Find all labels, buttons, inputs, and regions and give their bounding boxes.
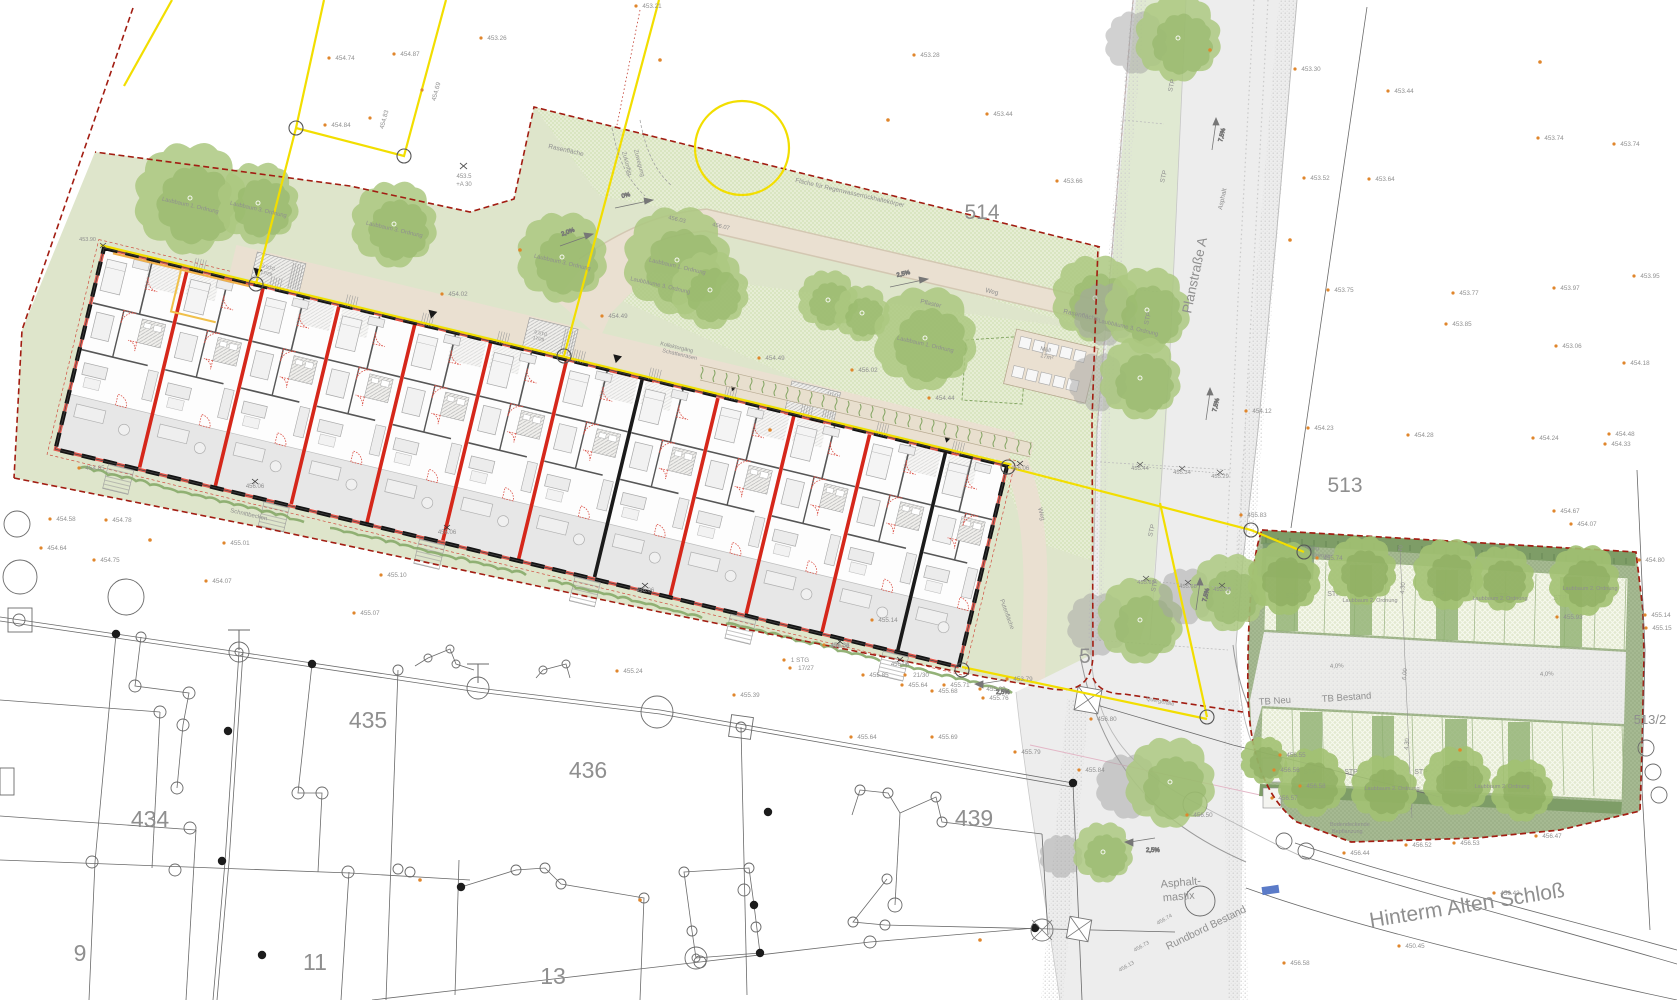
svg-text:453.85: 453.85 bbox=[1452, 321, 1472, 328]
svg-text:454.64: 454.64 bbox=[47, 545, 67, 552]
svg-text:454.49: 454.49 bbox=[608, 313, 628, 320]
svg-text:9: 9 bbox=[74, 940, 87, 966]
svg-text:456.06: 456.06 bbox=[438, 530, 457, 536]
svg-text:Laubbaum 2. Ordnung: Laubbaum 2. Ordnung bbox=[1364, 786, 1419, 792]
svg-text:456.02: 456.02 bbox=[858, 367, 878, 374]
svg-text:454.67: 454.67 bbox=[1560, 508, 1580, 515]
svg-text:455.15: 455.15 bbox=[1652, 625, 1672, 632]
svg-text:Bodendeckende: Bodendeckende bbox=[1330, 822, 1370, 828]
svg-text:453.06: 453.06 bbox=[1562, 343, 1582, 350]
svg-text:455.01: 455.01 bbox=[230, 540, 250, 547]
svg-text:455.14: 455.14 bbox=[1651, 612, 1671, 619]
svg-text:5: 5 bbox=[1079, 645, 1091, 668]
svg-text:453.64: 453.64 bbox=[1375, 176, 1395, 183]
svg-text:456.57: 456.57 bbox=[1278, 795, 1298, 802]
svg-text:456.44: 456.44 bbox=[1350, 850, 1370, 857]
svg-text:456.53: 456.53 bbox=[1460, 840, 1480, 847]
svg-text:Laubbaum 2. Ordnung: Laubbaum 2. Ordnung bbox=[1562, 586, 1617, 592]
svg-text:456.55: 456.55 bbox=[1286, 752, 1306, 759]
svg-text:456.58: 456.58 bbox=[1290, 960, 1310, 967]
svg-text:454.75: 454.75 bbox=[100, 557, 120, 564]
svg-text:453.21: 453.21 bbox=[642, 3, 662, 10]
svg-text:456.80: 456.80 bbox=[1097, 716, 1117, 723]
svg-text:454.23: 454.23 bbox=[1314, 425, 1334, 432]
svg-text:11: 11 bbox=[303, 949, 327, 975]
svg-text:4,30: 4,30 bbox=[1400, 581, 1407, 594]
svg-text:453.68: 453.68 bbox=[1213, 587, 1231, 593]
svg-text:453.30: 453.30 bbox=[1301, 66, 1321, 73]
svg-text:435: 435 bbox=[349, 707, 387, 733]
svg-text:4,0%: 4,0% bbox=[1330, 663, 1345, 670]
svg-text:453.52: 453.52 bbox=[1310, 175, 1330, 182]
svg-text:455.29: 455.29 bbox=[1211, 474, 1229, 480]
svg-text:454.33: 454.33 bbox=[1611, 441, 1631, 448]
svg-text:455.64: 455.64 bbox=[908, 682, 928, 689]
svg-text:455.93: 455.93 bbox=[1563, 614, 1583, 621]
svg-text:513: 513 bbox=[1327, 474, 1362, 497]
svg-text:455.07: 455.07 bbox=[360, 610, 380, 617]
svg-text:13: 13 bbox=[540, 963, 566, 989]
svg-text:453.95: 453.95 bbox=[1640, 273, 1660, 280]
svg-text:455.85: 455.85 bbox=[869, 672, 889, 679]
svg-text:21/30: 21/30 bbox=[913, 672, 929, 679]
svg-text:455.79: 455.79 bbox=[1021, 749, 1041, 756]
svg-text:454.28: 454.28 bbox=[1414, 432, 1434, 439]
svg-text:+A 30: +A 30 bbox=[456, 182, 472, 188]
svg-text:456.06: 456.06 bbox=[636, 588, 655, 594]
svg-text:454.07: 454.07 bbox=[1577, 521, 1597, 528]
svg-text:456.06: 456.06 bbox=[1011, 466, 1030, 472]
svg-text:434: 434 bbox=[131, 806, 170, 832]
svg-text:455.74: 455.74 bbox=[1323, 555, 1343, 562]
svg-text:17/27: 17/27 bbox=[798, 665, 814, 672]
svg-text:455.10: 455.10 bbox=[387, 572, 407, 579]
svg-text:70: 70 bbox=[1398, 544, 1405, 552]
svg-text:453.77: 453.77 bbox=[1459, 290, 1479, 297]
svg-text:513/2: 513/2 bbox=[1634, 712, 1667, 727]
svg-text:453.79: 453.79 bbox=[1013, 676, 1033, 683]
svg-text:454.48: 454.48 bbox=[1615, 431, 1635, 438]
svg-text:453.90: 453.90 bbox=[79, 237, 96, 243]
svg-text:455.68: 455.68 bbox=[938, 688, 958, 695]
svg-text:454.02: 454.02 bbox=[448, 291, 468, 298]
svg-text:456.52: 456.52 bbox=[1412, 842, 1432, 849]
svg-text:453.74: 453.74 bbox=[1620, 141, 1640, 148]
svg-text:455.64: 455.64 bbox=[857, 734, 877, 741]
svg-text:454.07: 454.07 bbox=[212, 578, 232, 585]
svg-text:450.45: 450.45 bbox=[1405, 943, 1425, 950]
svg-text:453.66: 453.66 bbox=[1063, 178, 1083, 185]
svg-text:455.69: 455.69 bbox=[938, 734, 958, 741]
svg-text:2,5%: 2,5% bbox=[996, 690, 1010, 696]
svg-text:454.49: 454.49 bbox=[765, 355, 785, 362]
svg-text:456.06: 456.06 bbox=[831, 644, 850, 650]
svg-text:456.47: 456.47 bbox=[1542, 833, 1562, 840]
svg-text:455.68: 455.68 bbox=[1179, 584, 1197, 590]
svg-text:454.12: 454.12 bbox=[1252, 408, 1272, 415]
svg-text:455.39: 455.39 bbox=[740, 692, 760, 699]
svg-text:454.85: 454.85 bbox=[85, 465, 105, 472]
svg-text:454.80: 454.80 bbox=[1645, 557, 1665, 564]
svg-text:455.83: 455.83 bbox=[1247, 512, 1267, 519]
svg-text:455.76: 455.76 bbox=[989, 695, 1009, 702]
svg-text:4,0%: 4,0% bbox=[1540, 671, 1555, 678]
svg-text:453.44: 453.44 bbox=[1394, 88, 1414, 95]
svg-text:456.58: 456.58 bbox=[1306, 783, 1326, 790]
svg-text:453.26: 453.26 bbox=[487, 35, 507, 42]
svg-text:454.87: 454.87 bbox=[400, 51, 420, 58]
svg-text:453.44: 453.44 bbox=[993, 111, 1013, 118]
svg-text:4,30: 4,30 bbox=[1404, 737, 1411, 750]
svg-text:454.44: 454.44 bbox=[935, 395, 955, 402]
svg-text:453.5: 453.5 bbox=[456, 174, 472, 180]
svg-text:Bepflanzung: Bepflanzung bbox=[1332, 829, 1363, 835]
svg-text:455.24: 455.24 bbox=[623, 668, 643, 675]
svg-text:453.97: 453.97 bbox=[1560, 285, 1580, 292]
svg-text:456.50: 456.50 bbox=[1193, 812, 1213, 819]
svg-text:1 STG: 1 STG bbox=[791, 657, 809, 664]
svg-text:454.18: 454.18 bbox=[1630, 360, 1650, 367]
svg-text:Laubbaum 2. Ordnung: Laubbaum 2. Ordnung bbox=[1342, 598, 1397, 604]
svg-text:456.06: 456.06 bbox=[246, 484, 265, 490]
svg-text:453.28: 453.28 bbox=[920, 52, 940, 59]
svg-text:453.75: 453.75 bbox=[1334, 287, 1354, 294]
svg-text:455.71: 455.71 bbox=[950, 682, 970, 689]
svg-text:454.84: 454.84 bbox=[331, 122, 351, 129]
svg-text:514: 514 bbox=[964, 201, 999, 224]
svg-text:TB Neu: TB Neu bbox=[1258, 695, 1291, 708]
svg-text:455.84: 455.84 bbox=[1085, 767, 1105, 774]
svg-text:2,5%: 2,5% bbox=[1146, 848, 1160, 854]
svg-text:454.74: 454.74 bbox=[335, 55, 355, 62]
svg-text:Laubbaum 2. Ordnung: Laubbaum 2. Ordnung bbox=[1472, 596, 1527, 602]
svg-text:453.74: 453.74 bbox=[1544, 135, 1564, 142]
svg-text:454.24: 454.24 bbox=[1539, 435, 1559, 442]
svg-text:436: 436 bbox=[569, 757, 607, 783]
svg-text:454.78: 454.78 bbox=[112, 517, 132, 524]
svg-text:Laubbaum 2. Ordnung: Laubbaum 2. Ordnung bbox=[1474, 784, 1529, 790]
svg-text:455.14: 455.14 bbox=[878, 617, 898, 624]
svg-text:439: 439 bbox=[955, 805, 993, 831]
svg-text:456.56: 456.56 bbox=[1280, 767, 1300, 774]
svg-text:456.06: 456.06 bbox=[891, 662, 910, 668]
svg-text:454.58: 454.58 bbox=[56, 516, 76, 523]
